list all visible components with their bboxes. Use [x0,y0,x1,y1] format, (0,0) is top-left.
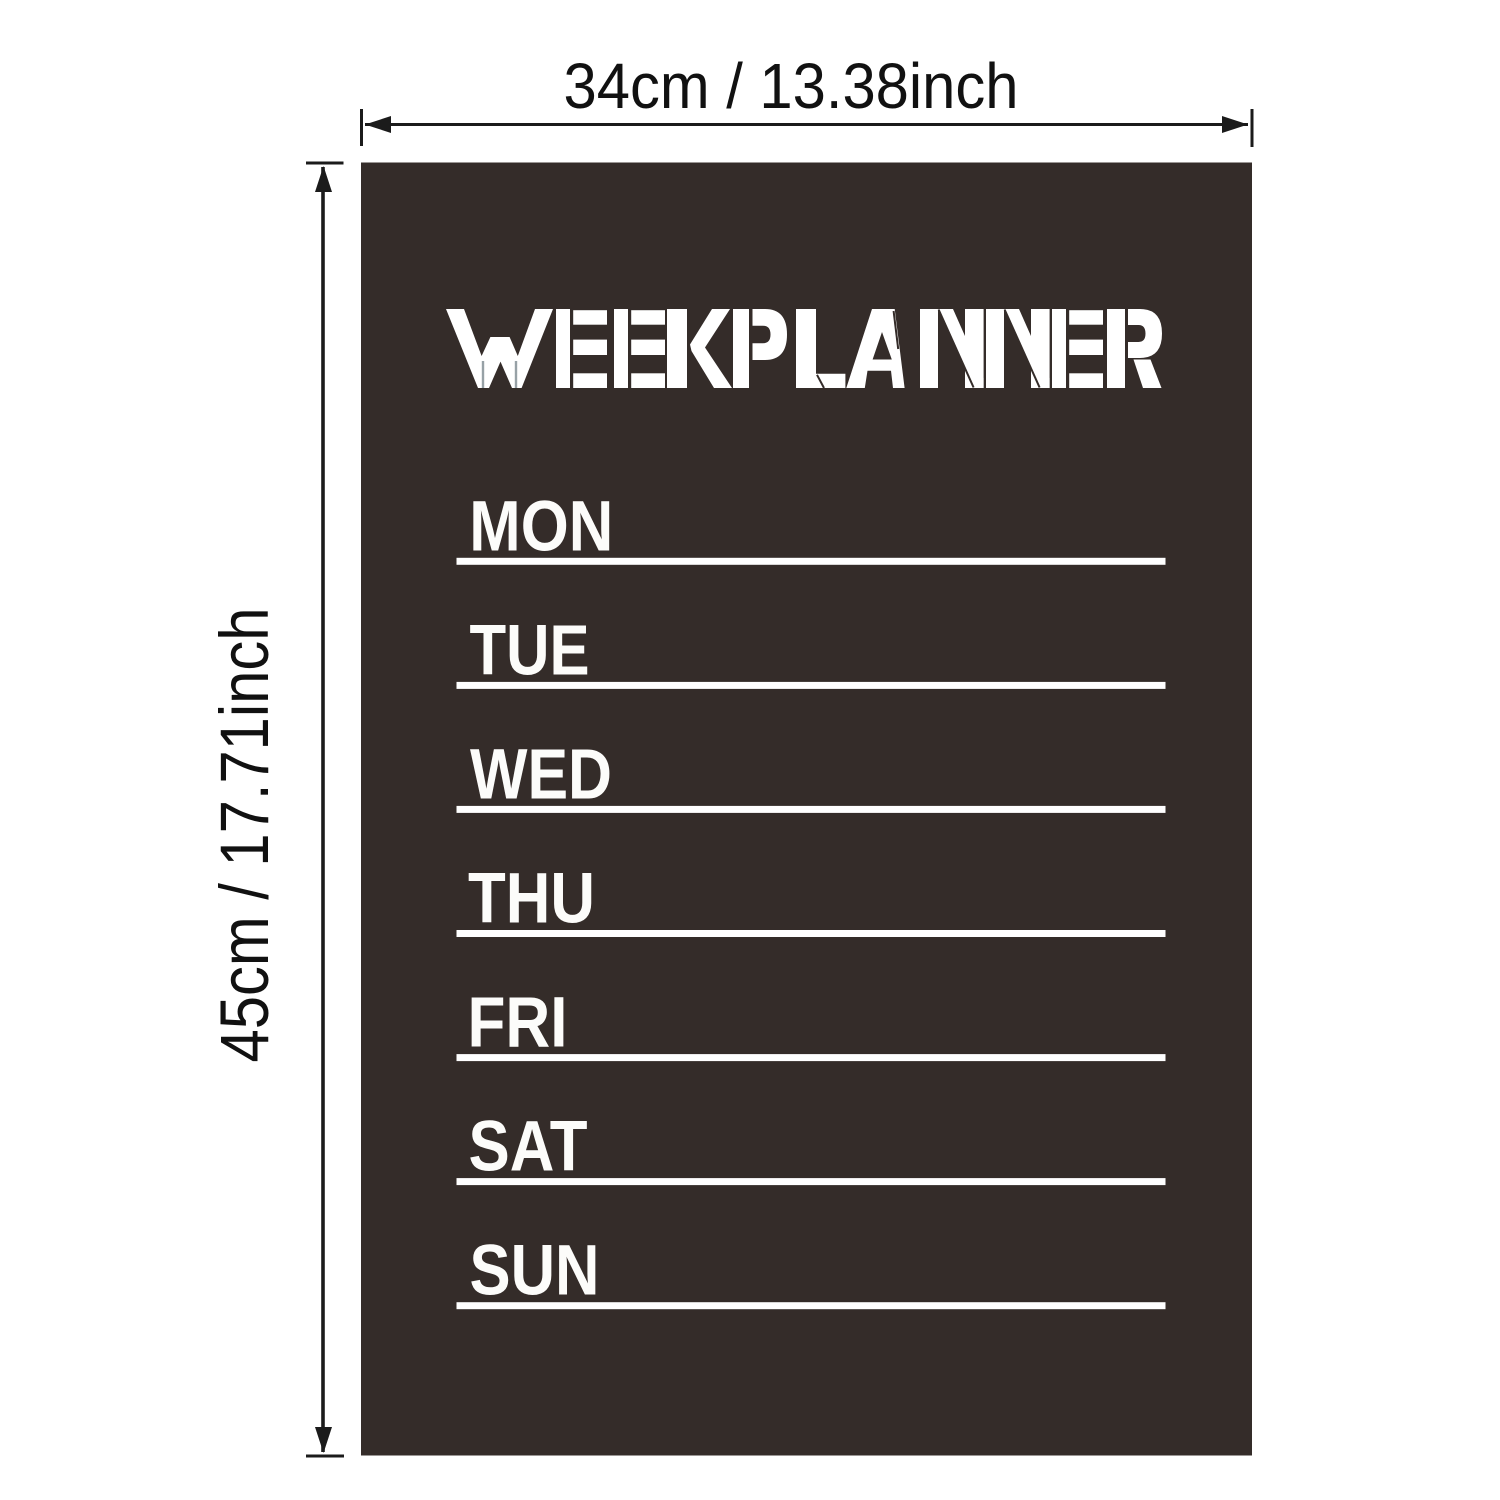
svg-text:SUN: SUN [470,1232,600,1311]
svg-text:THU: THU [468,860,595,939]
svg-text:WED: WED [470,735,612,814]
svg-text:MON: MON [469,487,613,566]
svg-text:34cm / 13.38inch: 34cm / 13.38inch [564,50,1019,122]
svg-text:FRI: FRI [468,984,568,1063]
svg-text:TUE: TUE [470,611,590,690]
svg-text:45cm / 17.71inch: 45cm / 17.71inch [206,608,283,1063]
svg-text:SAT: SAT [469,1108,588,1187]
